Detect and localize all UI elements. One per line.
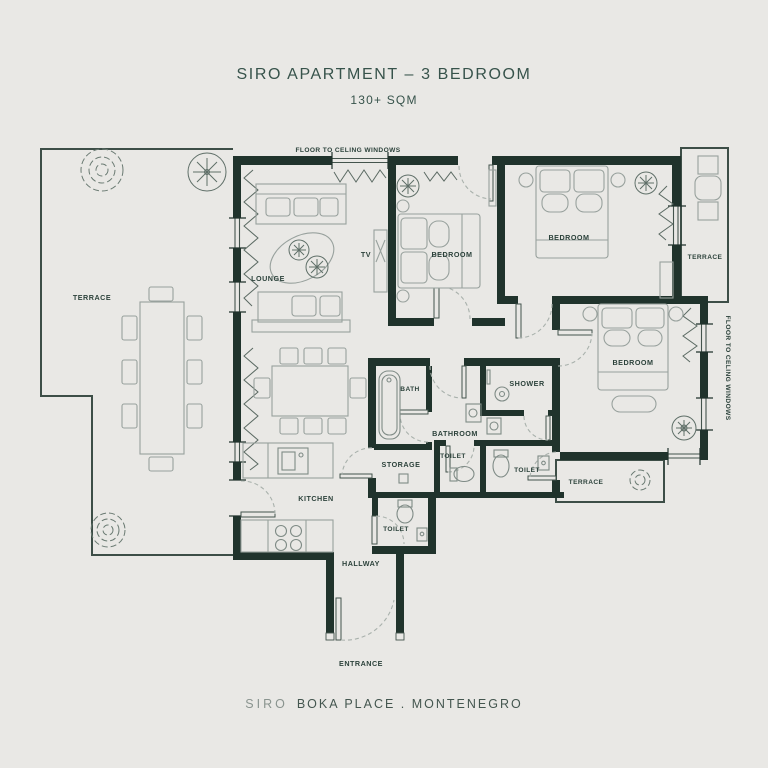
storage-box-icon [399,474,408,483]
dining-table-icon [254,348,366,434]
window-annotation-right: FLOOR TO CELING WINDOWS [724,315,731,420]
plan-header: SIRO APARTMENT – 3 BEDROOM 130+ SQM [237,66,532,107]
terrace-top-right-outline [681,148,728,302]
room-label-toilet-3: TOILET [383,526,409,533]
zigzag-window-icon [683,308,697,362]
plant-icon [91,513,125,547]
footer-brand: SIRO [245,697,288,711]
room-label-terrace-bottom-right: TERRACE [569,479,604,486]
room-label-bedroom-3: BEDROOM [612,358,653,367]
toilet-icon [397,500,427,541]
room-label-bedroom-1: BEDROOM [431,250,472,259]
room-label-tv: TV [361,250,371,259]
room-label-bedroom-2: BEDROOM [548,233,589,242]
zigzag-window-icon [659,186,673,240]
bathtub-icon [379,371,400,439]
plant-icon [81,149,123,191]
tv-icon [374,230,387,292]
room-label-kitchen: KITCHEN [298,494,333,503]
sofa-icon [252,292,350,332]
room-label-entrance: ENTRANCE [339,659,383,668]
room-label-toilet-1: TOILET [440,453,466,460]
room-label-storage: STORAGE [382,460,421,469]
plant-icon [672,416,696,440]
bed-icon [519,166,673,298]
room-label-hallway: HALLWAY [342,559,380,568]
plant-icon [397,175,419,197]
kitchen-island-icon [243,443,333,478]
zigzag-window-icon [424,172,457,181]
plant-icon [630,470,650,490]
plant-icon [188,153,226,191]
terrace-left-outline [41,149,233,555]
footer-location: BOKA PLACE . MONTENEGRO [297,697,523,711]
plant-icon [306,256,328,278]
footer-text: SIROBOKA PLACE . MONTENEGRO [245,697,522,711]
page-subtitle: 130+ SQM [350,93,417,107]
plan-footer: SIROBOKA PLACE . MONTENEGRO [245,697,522,711]
zigzag-window-icon [334,170,386,182]
plant-icon [289,240,309,260]
room-label-terrace-left: TERRACE [73,293,111,302]
room-label-lounge: LOUNGE [251,274,285,283]
toilet-icon [450,467,474,482]
floor-plan: SIRO APARTMENT – 3 BEDROOM 130+ SQM [0,0,768,768]
terrace-dining-table-icon [122,287,202,471]
sofa-icon [256,184,346,224]
shower-icon [487,370,509,401]
plant-icon [635,172,657,194]
page-title: SIRO APARTMENT – 3 BEDROOM [237,66,532,83]
room-label-terrace-top-right: TERRACE [688,254,723,261]
zigzag-window-icon [244,348,258,470]
terrace-seating-icon [695,156,721,220]
room-label-bath: BATH [400,386,419,393]
window-annotation-top: FLOOR TO CELING WINDOWS [295,147,400,154]
kitchen-counter-icon [241,520,333,552]
room-label-shower: SHOWER [509,379,545,388]
room-label-toilet-2: TOILET [514,467,540,474]
room-label-bathroom: BATHROOM [432,429,478,438]
